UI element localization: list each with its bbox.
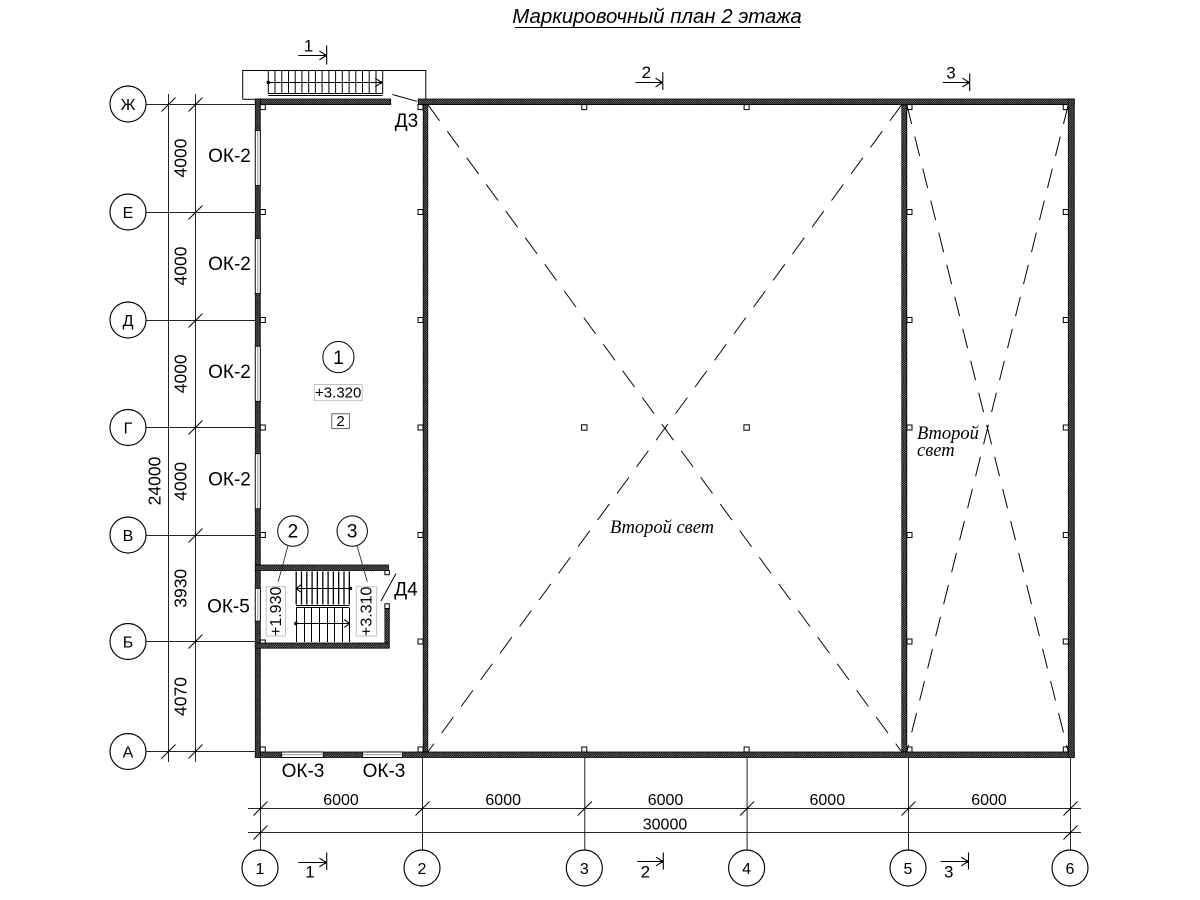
svg-text:+1.930: +1.930 — [268, 587, 285, 636]
svg-text:4070: 4070 — [171, 677, 191, 716]
svg-text:Маркировочный план 2 этажа: Маркировочный план 2 этажа — [512, 6, 801, 28]
svg-text:Е: Е — [123, 205, 134, 222]
svg-text:3: 3 — [347, 522, 358, 543]
svg-text:свет: свет — [917, 441, 955, 461]
svg-text:6000: 6000 — [648, 792, 684, 809]
svg-text:Второй свет: Второй свет — [610, 518, 714, 538]
svg-text:1: 1 — [256, 861, 265, 878]
svg-text:4: 4 — [742, 861, 751, 878]
svg-text:Б: Б — [123, 634, 134, 651]
svg-text:4000: 4000 — [171, 354, 191, 393]
svg-text:А: А — [123, 744, 134, 761]
svg-text:+3.320: +3.320 — [315, 385, 361, 402]
svg-text:ОК-2: ОК-2 — [208, 362, 251, 383]
svg-text:6000: 6000 — [971, 792, 1007, 809]
svg-text:ОК-2: ОК-2 — [208, 470, 251, 491]
svg-text:24000: 24000 — [145, 456, 165, 505]
svg-text:5: 5 — [904, 861, 913, 878]
svg-text:1: 1 — [304, 37, 313, 56]
svg-text:ОК-2: ОК-2 — [208, 146, 251, 167]
svg-text:2: 2 — [336, 413, 344, 430]
svg-text:3930: 3930 — [171, 569, 191, 608]
svg-text:1: 1 — [305, 863, 314, 882]
svg-text:4000: 4000 — [171, 246, 191, 285]
svg-text:4000: 4000 — [171, 138, 191, 177]
svg-text:Д3: Д3 — [395, 111, 418, 132]
svg-text:3: 3 — [946, 64, 955, 83]
svg-text:4000: 4000 — [171, 462, 191, 501]
svg-text:Г: Г — [124, 420, 133, 437]
svg-text:+3.310: +3.310 — [358, 587, 375, 636]
svg-text:1: 1 — [333, 348, 344, 369]
svg-text:6000: 6000 — [485, 792, 521, 809]
svg-text:ОК-2: ОК-2 — [208, 254, 251, 275]
svg-text:6000: 6000 — [810, 792, 846, 809]
svg-text:ОК-3: ОК-3 — [363, 761, 406, 782]
svg-text:3: 3 — [944, 863, 953, 882]
svg-text:В: В — [123, 528, 134, 545]
svg-text:ОК-3: ОК-3 — [282, 761, 325, 782]
svg-text:6: 6 — [1066, 861, 1075, 878]
svg-text:2: 2 — [641, 863, 650, 882]
svg-text:Д: Д — [123, 313, 134, 330]
svg-text:ОК-5: ОК-5 — [207, 597, 250, 618]
svg-text:30000: 30000 — [643, 817, 688, 834]
svg-text:2: 2 — [288, 522, 299, 543]
svg-text:Ж: Ж — [121, 97, 136, 114]
svg-text:2: 2 — [418, 861, 427, 878]
svg-text:2: 2 — [642, 63, 651, 82]
svg-text:6000: 6000 — [323, 792, 359, 809]
svg-text:Д4: Д4 — [394, 580, 418, 601]
svg-text:3: 3 — [580, 861, 589, 878]
